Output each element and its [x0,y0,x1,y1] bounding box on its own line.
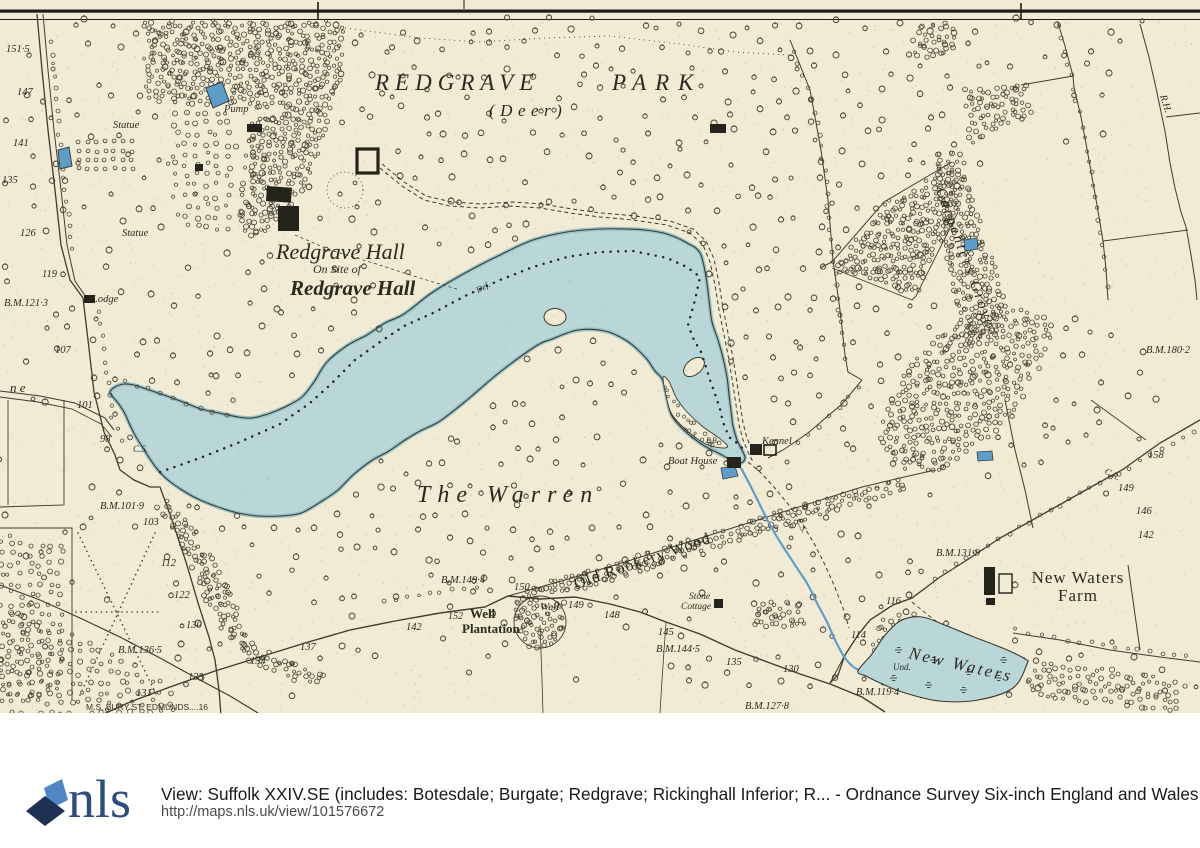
svg-text:131: 131 [136,688,152,699]
svg-text:Statue: Statue [122,228,149,239]
svg-text:Kennel: Kennel [761,436,792,447]
svg-text:Redgrave Hall: Redgrave Hall [275,239,405,264]
svg-text:B.M.121·3: B.M.121·3 [4,298,48,309]
svg-text:130: 130 [783,664,800,675]
svg-text:nls: nls [68,769,131,829]
svg-text:(Deer): (Deer) [489,101,567,120]
svg-text:B.M.149·4: B.M.149·4 [441,575,486,586]
svg-text:151·5: 151·5 [6,44,30,55]
svg-text:Redgrave Hall: Redgrave Hall [289,276,416,300]
svg-text:B.M.101·9: B.M.101·9 [100,501,145,512]
svg-text:B.M.144·5: B.M.144·5 [656,644,700,655]
svg-text:158: 158 [1148,450,1165,461]
svg-text:103: 103 [143,517,159,528]
svg-text:New Waters: New Waters [1032,568,1125,587]
svg-text:B.M.127·8: B.M.127·8 [745,701,790,712]
svg-text:142: 142 [406,622,423,633]
svg-text:134: 134 [250,656,267,667]
svg-text:Well: Well [540,601,559,613]
svg-text:112: 112 [161,558,177,569]
svg-text:PARK: PARK [611,70,703,95]
svg-text:B.M.131·9: B.M.131·9 [936,548,981,559]
svg-text:114: 114 [851,630,867,641]
svg-text:98: 98 [100,434,111,445]
svg-text:http://maps.nls.uk/view/101576: http://maps.nls.uk/view/101576672 [161,804,384,820]
svg-text:137: 137 [300,642,317,653]
svg-text:142: 142 [1138,530,1155,541]
svg-text:Cottage: Cottage [681,602,711,612]
svg-text:152: 152 [448,611,463,622]
svg-text:145: 145 [658,627,674,638]
svg-text:116: 116 [886,596,902,607]
svg-text:Und.: Und. [893,662,911,672]
svg-text:148: 148 [604,610,621,621]
svg-text:The Warren: The Warren [417,482,599,508]
svg-text:Boat House: Boat House [668,456,718,467]
svg-text:122: 122 [174,590,191,601]
svg-text:F.B.: F.B. [705,436,719,445]
svg-text:Farm: Farm [1058,586,1098,605]
svg-text:n e: n e [10,380,26,395]
svg-text:B.M.180·2: B.M.180·2 [1146,345,1191,356]
svg-text:REDGRAVE: REDGRAVE [374,70,539,95]
svg-text:M.S. BURY ST. EDMUNDS....16: M.S. BURY ST. EDMUNDS....16 [86,702,208,712]
svg-text:107: 107 [55,345,72,356]
svg-text:C.S.: C.S. [133,444,148,454]
svg-text:Well: Well [470,606,496,621]
svg-text:B.M.119·4: B.M.119·4 [856,687,900,698]
svg-text:150: 150 [514,582,531,593]
svg-text:146: 146 [1136,506,1153,517]
svg-text:135: 135 [2,175,18,186]
svg-text:149: 149 [1118,483,1135,494]
svg-text:Pump: Pump [223,104,249,115]
svg-text:Statue: Statue [113,120,140,131]
svg-text:130: 130 [186,620,203,631]
svg-text:119: 119 [42,269,58,280]
svg-text:149: 149 [568,600,585,611]
svg-text:147: 147 [17,87,34,98]
svg-text:View: Suffolk XXIV.SE (include: View: Suffolk XXIV.SE (includes: Botesda… [161,784,1200,804]
svg-text:133: 133 [188,672,204,683]
svg-text:B.M.136·5: B.M.136·5 [118,645,162,656]
svg-text:101: 101 [77,400,93,411]
svg-text:141: 141 [13,138,29,149]
svg-text:135: 135 [726,657,742,668]
svg-text:Plantation: Plantation [462,621,521,636]
svg-text:Stone: Stone [689,592,710,602]
svg-text:On Site of: On Site of [313,262,363,276]
svg-text:126: 126 [20,228,37,239]
svg-text:Lodge: Lodge [91,294,119,305]
